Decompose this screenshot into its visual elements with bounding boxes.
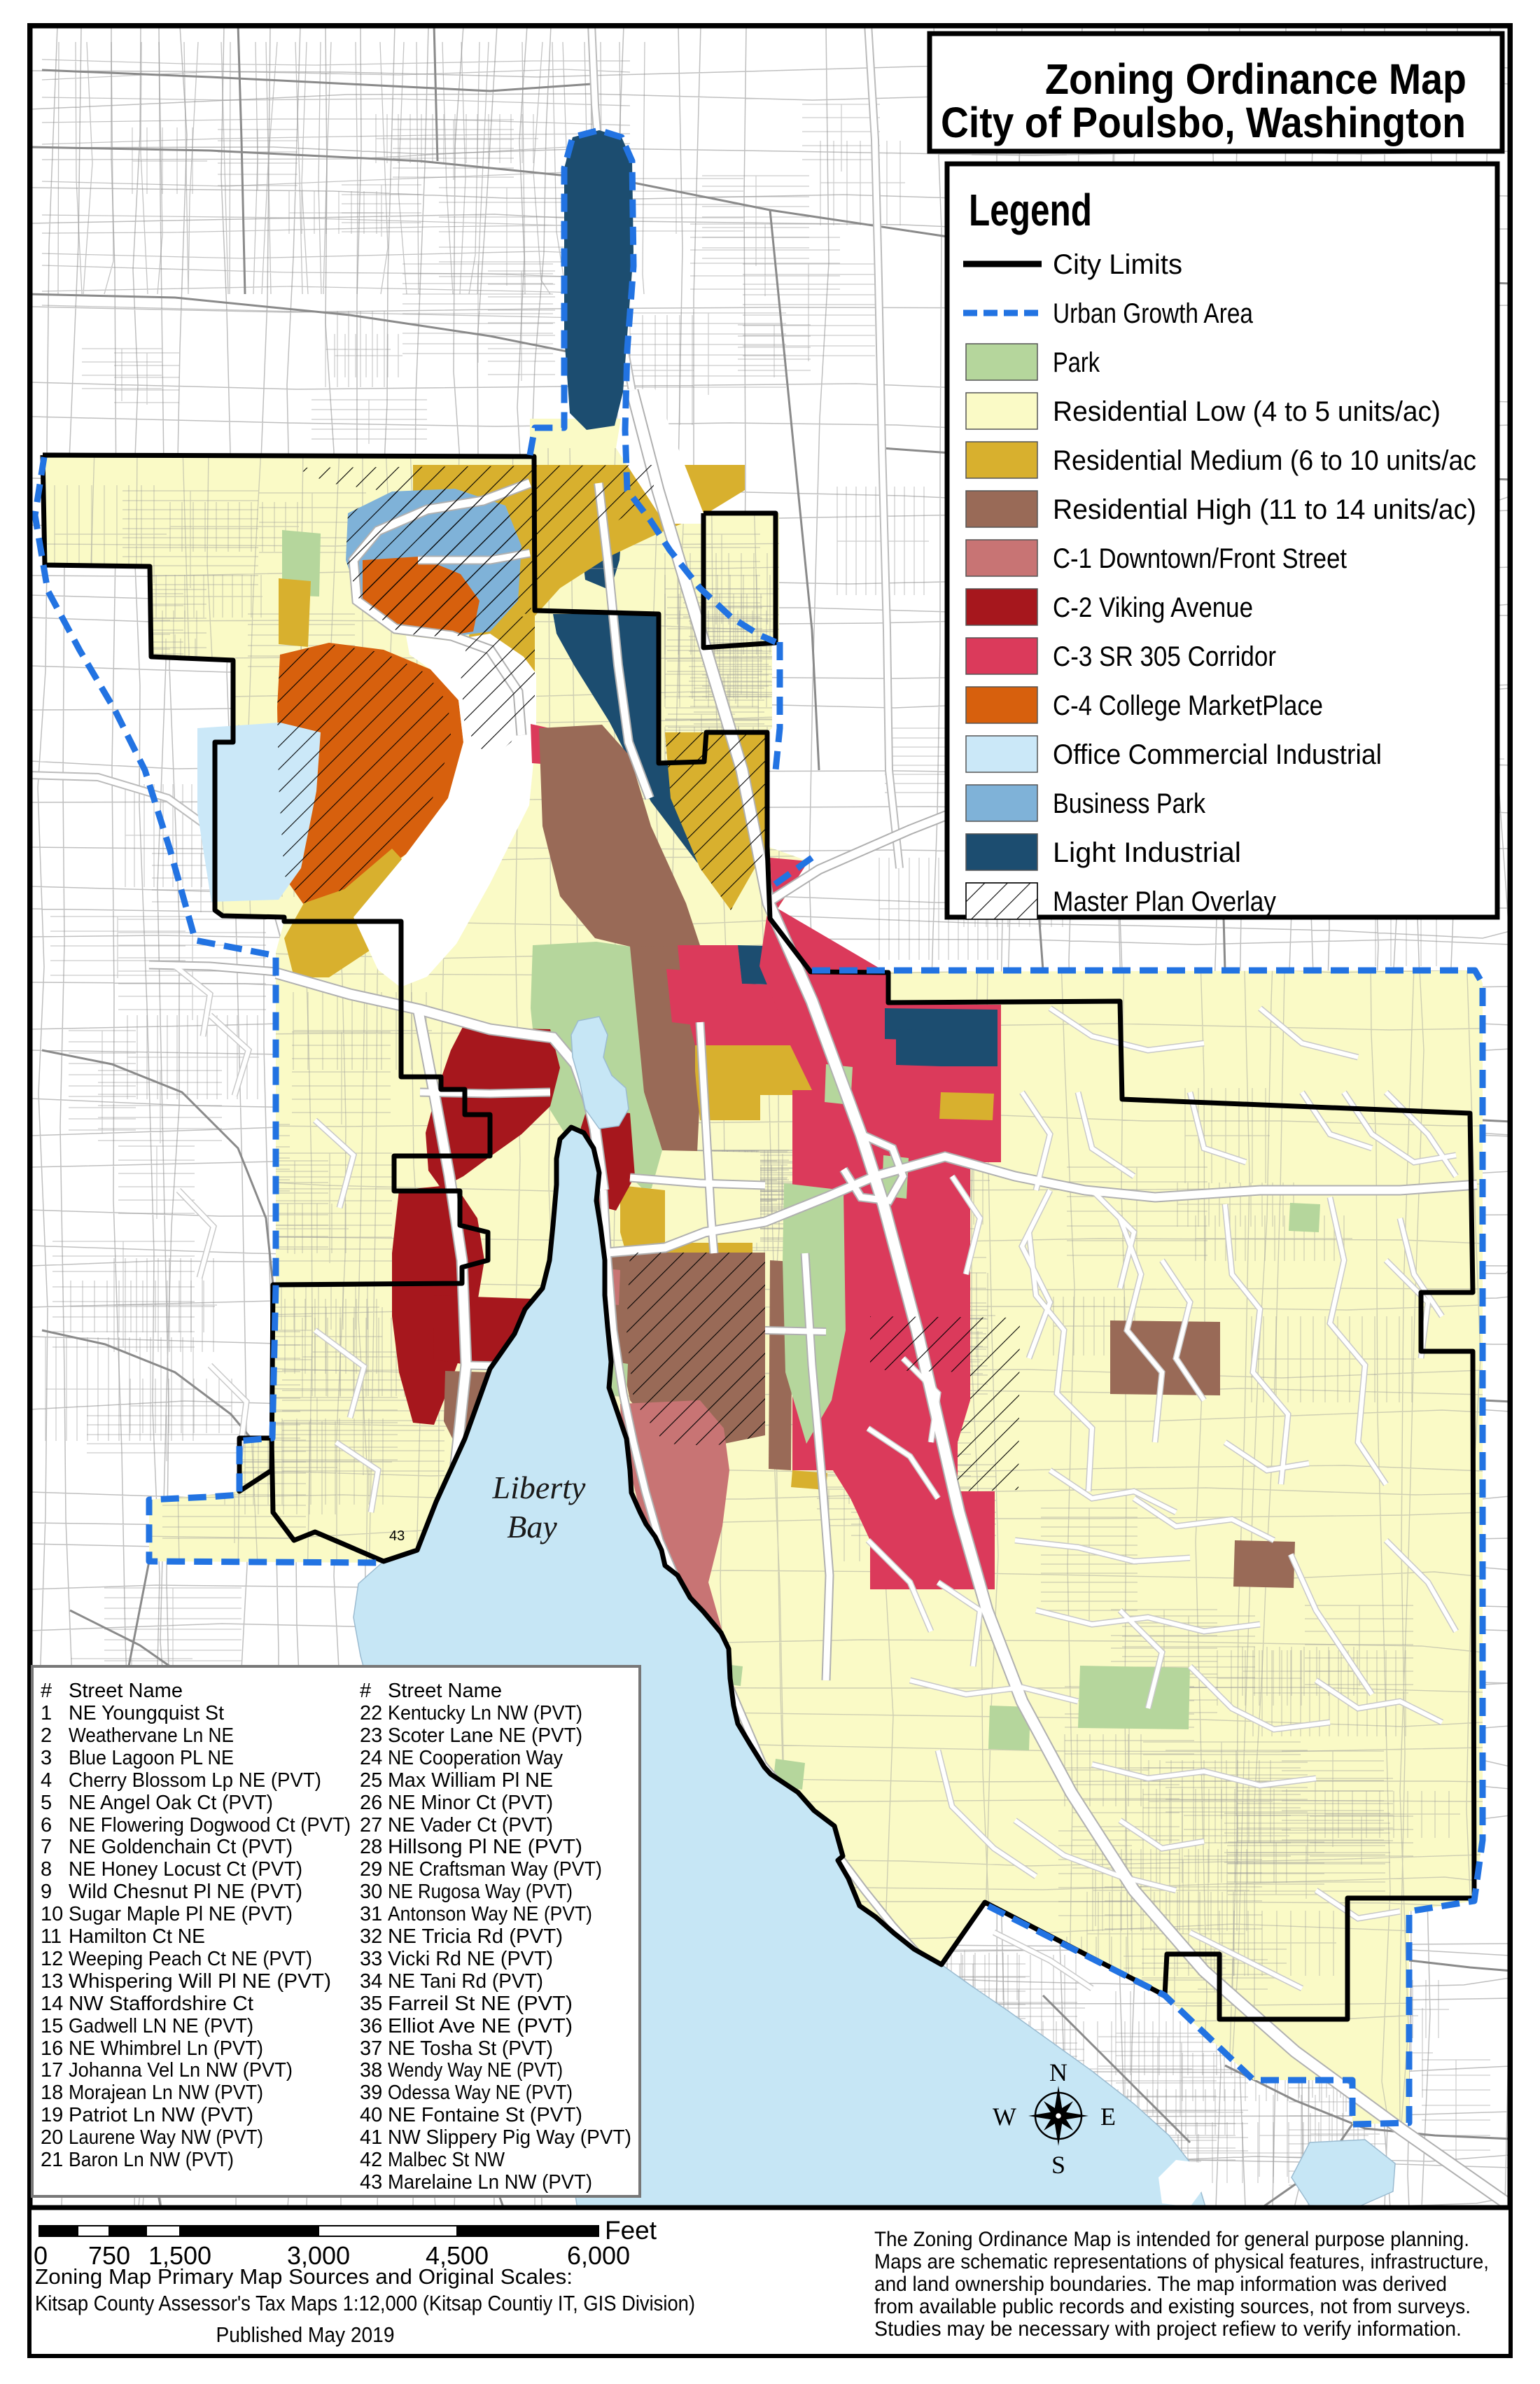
- svg-text:Wild Chesnut Pl NE (PVT): Wild Chesnut Pl NE (PVT): [69, 1881, 302, 1903]
- svg-text:4: 4: [41, 1769, 52, 1792]
- svg-text:Residential Medium (6 to 10 un: Residential Medium (6 to 10 units/ac: [1053, 445, 1476, 476]
- svg-text:42: 42: [360, 2149, 382, 2171]
- svg-text:and land ownership boundaries.: and land ownership boundaries. The map i…: [874, 2273, 1447, 2296]
- svg-text:Bay: Bay: [507, 1509, 557, 1545]
- svg-text:9: 9: [41, 1881, 52, 1903]
- svg-text:29: 29: [360, 1858, 382, 1881]
- svg-text:Baron Ln NW (PVT): Baron Ln NW (PVT): [69, 2149, 234, 2171]
- svg-text:NE Minor Ct (PVT): NE Minor Ct (PVT): [388, 1792, 553, 1814]
- svg-text:Weathervane Ln NE: Weathervane Ln NE: [69, 1724, 234, 1747]
- svg-text:NE Whimbrel Ln (PVT): NE Whimbrel Ln (PVT): [69, 2037, 263, 2060]
- svg-text:Morajean Ln NW (PVT): Morajean Ln NW (PVT): [69, 2082, 263, 2104]
- svg-text:7: 7: [41, 1836, 52, 1858]
- svg-text:32: 32: [360, 1925, 382, 1948]
- svg-text:Street Name: Street Name: [69, 1680, 183, 1702]
- svg-text:Elliot Ave NE (PVT): Elliot Ave NE (PVT): [388, 2015, 573, 2037]
- svg-text:NW Staffordshire Ct: NW Staffordshire Ct: [69, 1993, 253, 2015]
- svg-text:Kitsap County Assessor's Tax M: Kitsap County Assessor's Tax Maps 1:12,0…: [35, 2291, 695, 2315]
- svg-text:43: 43: [389, 1528, 405, 1544]
- svg-text:36: 36: [360, 2015, 382, 2037]
- svg-text:Residential High (11 to 14 uni: Residential High (11 to 14 units/ac): [1053, 494, 1476, 525]
- svg-text:The Zoning Ordinance Map is in: The Zoning Ordinance Map is intended for…: [874, 2228, 1469, 2251]
- svg-text:Published May 2019: Published May 2019: [216, 2322, 395, 2347]
- svg-text:Liberty: Liberty: [492, 1470, 586, 1505]
- svg-text:NE Angel Oak Ct (PVT): NE Angel Oak Ct (PVT): [69, 1792, 273, 1814]
- svg-text:43: 43: [360, 2171, 382, 2194]
- svg-text:5: 5: [41, 1792, 52, 1814]
- svg-text:40: 40: [360, 2104, 382, 2126]
- svg-text:NE Craftsman Way (PVT): NE Craftsman Way (PVT): [388, 1858, 602, 1881]
- svg-text:13: 13: [41, 1970, 63, 1993]
- svg-text:3: 3: [41, 1747, 52, 1769]
- svg-text:Odessa Way NE (PVT): Odessa Way NE (PVT): [388, 2082, 573, 2104]
- svg-text:30: 30: [360, 1881, 382, 1903]
- svg-text:Park: Park: [1053, 347, 1100, 378]
- svg-text:NW Slippery Pig Way (PVT): NW Slippery Pig Way (PVT): [388, 2126, 631, 2149]
- svg-text:Gadwell LN NE (PVT): Gadwell LN NE (PVT): [69, 2015, 253, 2037]
- svg-text:#: #: [360, 1680, 371, 1702]
- svg-text:Feet: Feet: [605, 2216, 657, 2245]
- svg-text:31: 31: [360, 1903, 382, 1925]
- svg-text:Hillsong Pl NE (PVT): Hillsong Pl NE (PVT): [388, 1836, 582, 1858]
- svg-text:Antonson Way NE (PVT): Antonson Way NE (PVT): [388, 1903, 592, 1925]
- svg-text:Street Name: Street Name: [388, 1680, 502, 1702]
- svg-text:39: 39: [360, 2082, 382, 2104]
- svg-text:Laurene Way NW (PVT): Laurene Way NW (PVT): [69, 2126, 263, 2149]
- svg-text:17: 17: [41, 2059, 63, 2082]
- svg-text:2: 2: [41, 1724, 52, 1747]
- svg-text:24: 24: [360, 1747, 382, 1769]
- svg-text:NE Flowering Dogwood Ct (PVT): NE Flowering Dogwood Ct (PVT): [69, 1814, 351, 1836]
- svg-text:C-3 SR 305 Corridor: C-3 SR 305 Corridor: [1053, 641, 1276, 672]
- svg-text:S: S: [1051, 2151, 1065, 2179]
- svg-text:19: 19: [41, 2104, 63, 2126]
- svg-text:11: 11: [41, 1925, 62, 1948]
- svg-text:38: 38: [360, 2059, 382, 2082]
- svg-text:NE Honey Locust Ct (PVT): NE Honey Locust Ct (PVT): [69, 1858, 302, 1881]
- svg-text:35: 35: [360, 1993, 382, 2015]
- svg-text:NE Goldenchain Ct (PVT): NE Goldenchain Ct (PVT): [69, 1836, 293, 1858]
- svg-text:from available public records: from available public records and existi…: [874, 2295, 1471, 2318]
- svg-text:Cherry Blossom Lp NE (PVT): Cherry Blossom Lp NE (PVT): [69, 1769, 321, 1792]
- svg-text:12: 12: [41, 1948, 63, 1970]
- svg-text:NE Tani Rd (PVT): NE Tani Rd (PVT): [388, 1970, 543, 1993]
- svg-text:Studies may be necessary with: Studies may be necessary with project re…: [874, 2317, 1462, 2341]
- svg-text:Weeping Peach Ct NE (PVT): Weeping Peach Ct NE (PVT): [69, 1948, 312, 1970]
- svg-text:NE Vader Ct (PVT): NE Vader Ct (PVT): [388, 1814, 553, 1836]
- svg-text:6,000: 6,000: [567, 2241, 630, 2270]
- svg-text:Whispering Will Pl NE (PVT): Whispering Will Pl NE (PVT): [69, 1970, 331, 1993]
- svg-text:6: 6: [41, 1814, 52, 1836]
- svg-text:NE Youngquist St: NE Youngquist St: [69, 1702, 224, 1724]
- svg-text:Farreil St NE (PVT): Farreil St NE (PVT): [388, 1993, 573, 2015]
- svg-text:14: 14: [41, 1993, 63, 2015]
- svg-text:27: 27: [360, 1814, 382, 1836]
- svg-text:N: N: [1049, 2058, 1067, 2086]
- svg-text:Light Industrial: Light Industrial: [1053, 837, 1241, 868]
- svg-text:15: 15: [41, 2015, 63, 2037]
- svg-text:Johanna Vel Ln NW (PVT): Johanna Vel Ln NW (PVT): [69, 2059, 293, 2082]
- svg-text:Residential Low (4 to 5 units/: Residential Low (4 to 5 units/ac): [1053, 396, 1441, 427]
- svg-text:22: 22: [360, 1702, 382, 1724]
- svg-text:Master Plan Overlay: Master Plan Overlay: [1053, 886, 1276, 917]
- svg-text:Legend: Legend: [969, 185, 1092, 235]
- svg-text:Malbec St NW: Malbec St NW: [388, 2149, 505, 2171]
- svg-text:Vicki Rd NE (PVT): Vicki Rd NE (PVT): [388, 1948, 553, 1970]
- svg-text:34: 34: [360, 1970, 382, 1993]
- svg-text:41: 41: [360, 2126, 382, 2149]
- svg-text:16: 16: [41, 2037, 63, 2060]
- svg-text:NE Tricia Rd (PVT): NE Tricia Rd (PVT): [388, 1925, 563, 1948]
- svg-text:Zoning Ordinance Map: Zoning Ordinance Map: [1045, 55, 1466, 103]
- svg-text:NE Fontaine St (PVT): NE Fontaine St (PVT): [388, 2104, 582, 2126]
- svg-text:Business Park: Business Park: [1053, 788, 1206, 819]
- svg-text:20: 20: [41, 2126, 63, 2149]
- svg-text:37: 37: [360, 2037, 382, 2060]
- svg-text:#: #: [41, 1680, 52, 1702]
- svg-text:33: 33: [360, 1948, 382, 1970]
- svg-text:NE Cooperation Way: NE Cooperation Way: [388, 1747, 563, 1769]
- svg-text:C-4 College MarketPlace: C-4 College MarketPlace: [1053, 690, 1323, 721]
- svg-text:NE Rugosa Way (PVT): NE Rugosa Way (PVT): [388, 1881, 573, 1903]
- svg-text:City of Poulsbo, Washington: City of Poulsbo, Washington: [941, 99, 1466, 146]
- svg-text:10: 10: [41, 1903, 63, 1925]
- svg-text:Max William Pl NE: Max William Pl NE: [388, 1769, 553, 1792]
- svg-text:C-2 Viking Avenue: C-2 Viking Avenue: [1053, 592, 1253, 623]
- svg-text:8: 8: [41, 1858, 52, 1881]
- svg-text:Hamilton Ct NE: Hamilton Ct NE: [69, 1925, 205, 1948]
- svg-text:Zoning Map Primary Map Sources: Zoning Map Primary Map Sources and Origi…: [35, 2264, 573, 2289]
- svg-text:Urban Growth Area: Urban Growth Area: [1053, 298, 1254, 329]
- svg-text:23: 23: [360, 1724, 382, 1747]
- svg-text:26: 26: [360, 1792, 382, 1814]
- svg-text:Marelaine Ln NW (PVT): Marelaine Ln NW (PVT): [388, 2171, 592, 2194]
- svg-text:Scoter Lane NE (PVT): Scoter Lane NE (PVT): [388, 1724, 582, 1747]
- svg-text:NE Tosha St (PVT): NE Tosha St (PVT): [388, 2037, 553, 2060]
- svg-text:W: W: [993, 2103, 1016, 2131]
- svg-text:18: 18: [41, 2082, 63, 2104]
- svg-text:Kentucky Ln NW (PVT): Kentucky Ln NW (PVT): [388, 1702, 582, 1724]
- svg-text:City Limits: City Limits: [1053, 249, 1182, 280]
- svg-text:C-1 Downtown/Front Street: C-1 Downtown/Front Street: [1053, 543, 1347, 574]
- svg-text:Maps are schematic representat: Maps are schematic representations of ph…: [874, 2250, 1489, 2273]
- svg-text:25: 25: [360, 1769, 382, 1792]
- svg-text:Sugar Maple Pl NE (PVT): Sugar Maple Pl NE (PVT): [69, 1903, 293, 1925]
- svg-text:E: E: [1100, 2103, 1116, 2131]
- svg-text:1: 1: [41, 1702, 52, 1724]
- svg-text:Office Commercial Industrial: Office Commercial Industrial: [1053, 739, 1382, 770]
- svg-text:Patriot Ln NW (PVT): Patriot Ln NW (PVT): [69, 2104, 253, 2126]
- svg-text:Wendy Way NE (PVT): Wendy Way NE (PVT): [388, 2059, 563, 2082]
- svg-text:28: 28: [360, 1836, 382, 1858]
- svg-text:21: 21: [41, 2149, 63, 2171]
- svg-text:Blue Lagoon PL NE: Blue Lagoon PL NE: [69, 1747, 234, 1769]
